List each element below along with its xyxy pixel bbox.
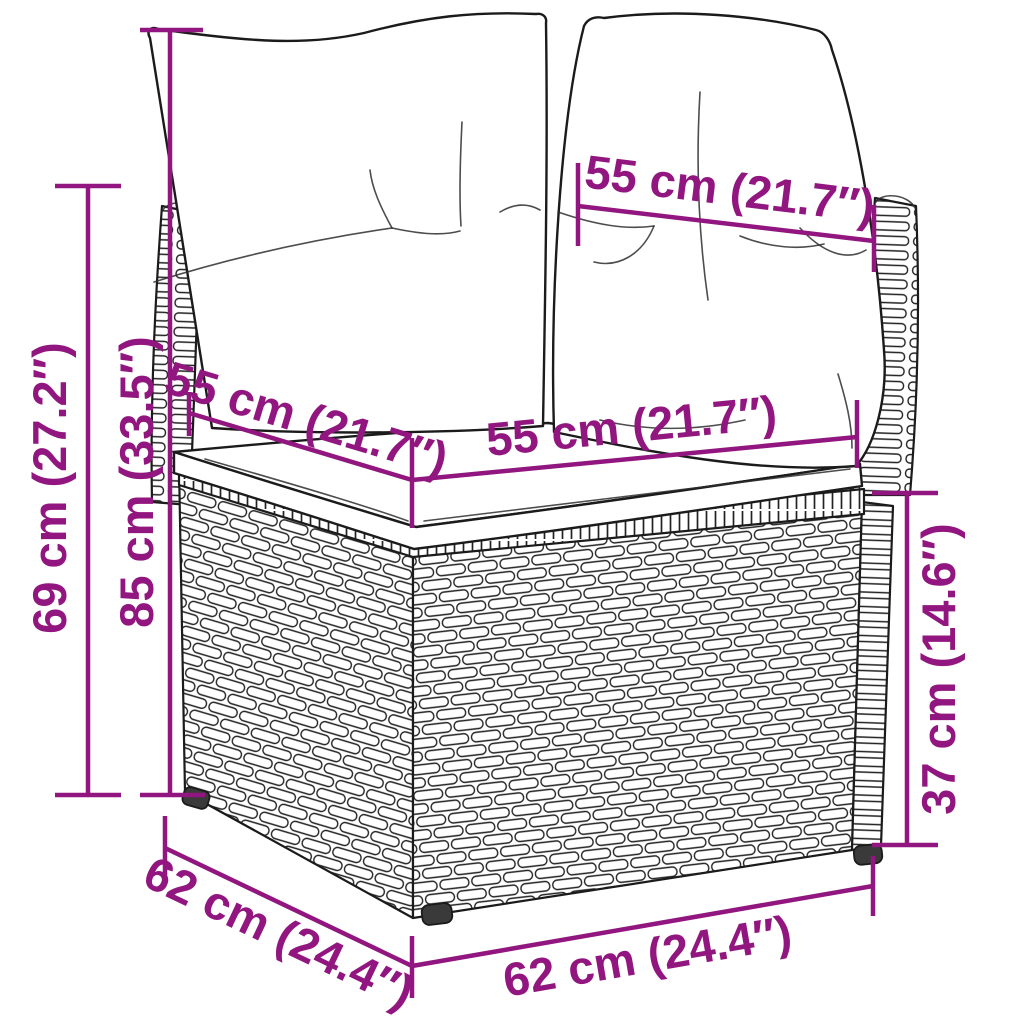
dimension-diagram: 55 cm (21.7″) 85 cm (33.5″) 69 cm (27.2″… — [0, 0, 1024, 1024]
total-height-label: 85 cm (33.5″) — [110, 336, 163, 628]
backrest-height-label: 69 cm (27.2″) — [23, 342, 76, 634]
sofa-dimension-drawing: 55 cm (21.7″) 85 cm (33.5″) 69 cm (27.2″… — [0, 0, 1024, 1024]
foot-front-left — [421, 902, 453, 926]
dimension-backrest-height: 69 cm (27.2″) — [23, 186, 121, 795]
base-front-face — [413, 502, 862, 918]
base-height-label: 37 cm (14.6″) — [912, 523, 965, 815]
base-width-label: 62 cm (24.4″) — [499, 905, 795, 1007]
